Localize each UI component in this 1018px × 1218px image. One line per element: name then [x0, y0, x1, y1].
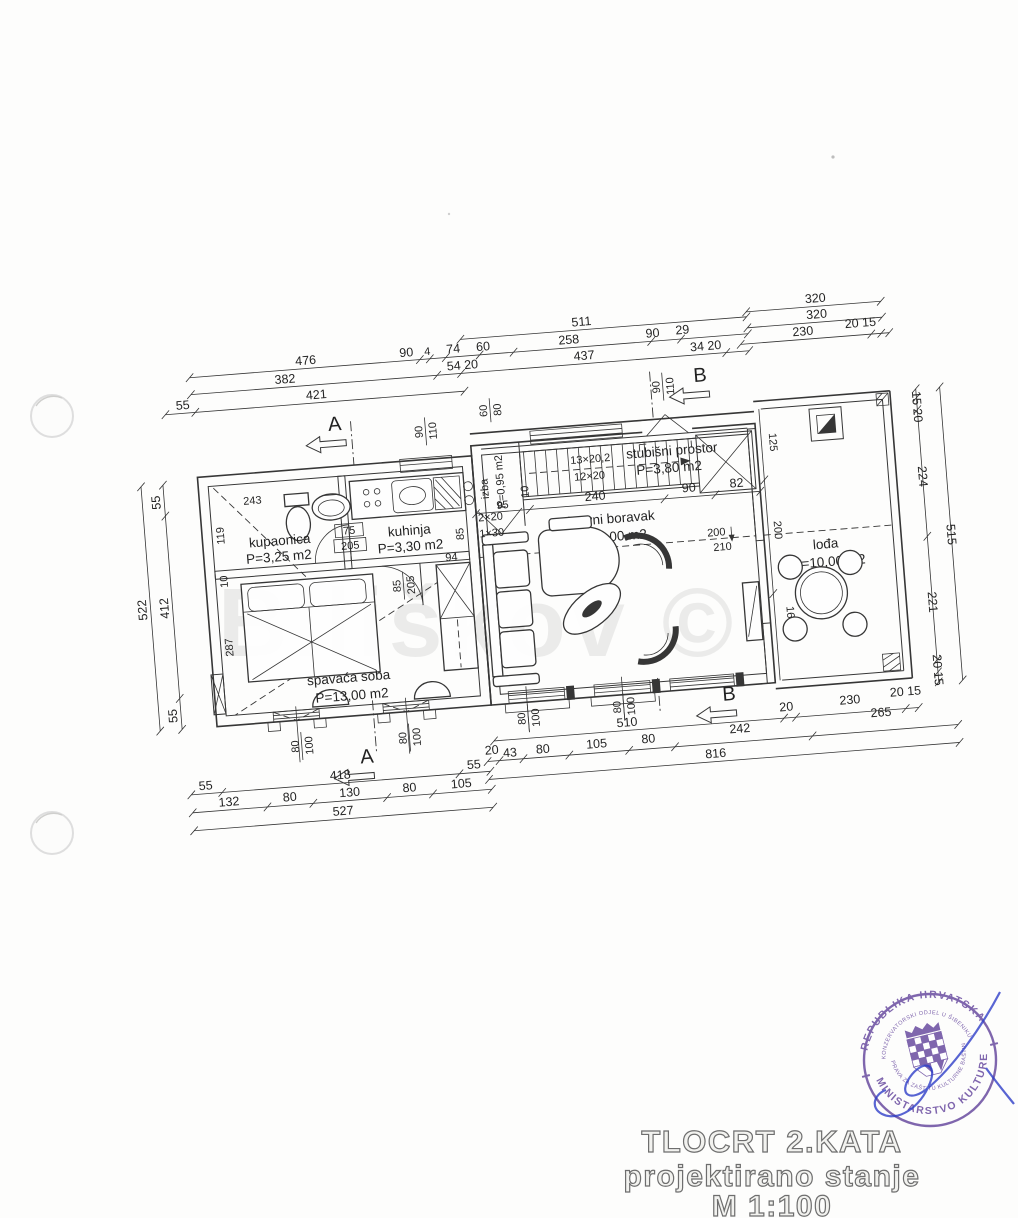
dim-label: 230: [792, 324, 814, 340]
window-size-label: 80 100: [396, 723, 424, 753]
dim-label: 90: [399, 345, 414, 360]
dim-label: 200: [707, 526, 726, 539]
title-block: TLOCRT 2.KATA projektirano stanje M 1:10…: [624, 1124, 921, 1218]
dim-label: 258: [558, 332, 580, 348]
curved-chair: [624, 533, 669, 572]
svg-text:85: 85: [391, 579, 404, 592]
room-label: izba: [478, 477, 492, 499]
dim-label: 80: [641, 731, 656, 746]
dim-label: 20: [779, 699, 794, 714]
corner-hatch: [862, 393, 910, 671]
floor-plan: 75 205 kupaonica P=3,25 m2 243 kuhinja P…: [115, 282, 977, 838]
dim-label: 74: [446, 341, 461, 356]
dim-chain-right: 15 20 224 221 20 15 515: [908, 382, 970, 686]
dim-label: 224: [915, 466, 931, 488]
kitchen: kuhinja P=3,30 m2: [349, 472, 477, 558]
dim-label: 527: [332, 803, 354, 819]
dim-label: 816: [705, 746, 727, 762]
dim-label: 119: [214, 527, 227, 545]
dim-label: 1×30: [479, 527, 505, 541]
svg-text:100: 100: [530, 708, 543, 727]
stair-steps-existing: 13×20,2: [570, 452, 611, 467]
door-size: 205: [341, 539, 360, 552]
dim-label: 55: [149, 495, 164, 510]
section-arrow-icon: [306, 435, 347, 454]
window-size-label: 90 110: [650, 372, 678, 402]
svg-text:110: 110: [427, 422, 440, 440]
dim-label: 94: [445, 551, 458, 564]
dim-label: 132: [218, 794, 240, 810]
drawing-title: TLOCRT 2.KATA: [641, 1124, 902, 1159]
dim-label: 130: [339, 785, 361, 801]
dim-label: 85: [454, 527, 467, 540]
svg-text:90: 90: [650, 381, 663, 394]
chair-icon: [842, 611, 868, 637]
window-size-label: 60 80: [477, 397, 505, 423]
section-label-a: A: [359, 745, 375, 768]
dim-label: 60: [476, 339, 491, 354]
dim-label: 95: [496, 499, 509, 512]
lodge: 125 200 160 lođa P=10,00 m2: [753, 391, 912, 689]
svg-text:80: 80: [289, 740, 302, 753]
dim-label: 90: [645, 326, 660, 341]
dim-label: 55: [175, 398, 190, 413]
dim-label: 287: [223, 638, 236, 657]
room-label: lođa: [812, 535, 839, 552]
dim-label: 90: [681, 480, 696, 495]
scan-speck: [448, 213, 450, 215]
scanned-floor-plan-page: Biliškov ©: [0, 0, 1018, 1218]
svg-text:80: 80: [492, 403, 505, 416]
dim-label: 421: [305, 387, 327, 403]
svg-text:80: 80: [397, 731, 410, 744]
svg-text:80: 80: [611, 701, 624, 714]
dim-label: 510: [616, 715, 638, 731]
svg-text:100: 100: [411, 727, 424, 746]
dim-label: 80: [282, 790, 297, 805]
dim-label: 55: [166, 709, 181, 724]
dim-chain-bottom-left: 55 418 55 132 80 130 80 105 527: [186, 756, 497, 835]
chimney-icon: [809, 407, 843, 441]
dim-label: 243: [243, 494, 262, 507]
dim-label: 200: [771, 520, 784, 539]
dim-label: 382: [274, 371, 296, 387]
dim-label: 29: [675, 322, 690, 337]
dim-label: 55: [198, 778, 213, 793]
dim-label: 476: [295, 353, 317, 369]
section-label-b: B: [722, 683, 737, 706]
sink-icon: [311, 493, 351, 522]
dim-label: 20 15: [930, 654, 946, 686]
svg-text:100: 100: [303, 736, 316, 755]
dim-label: 242: [729, 721, 751, 737]
window-size-label: 90 110: [412, 416, 440, 446]
section-label-a: A: [327, 413, 343, 436]
dim-label: 418: [329, 767, 351, 783]
drawing-scale: M 1:100: [712, 1190, 833, 1218]
dim-label: 10: [218, 575, 231, 588]
dim-label: 15 20: [909, 391, 925, 423]
dim-label: 320: [804, 291, 826, 307]
svg-text:100: 100: [625, 696, 638, 715]
hole-punches: [31, 395, 73, 854]
toilet-tank: [284, 493, 309, 507]
bedside-item: [413, 680, 450, 699]
scan-speck: [831, 155, 834, 158]
dim-label: 320: [806, 307, 828, 323]
svg-text:110: 110: [664, 377, 677, 395]
room-area: P=13,00 m2: [315, 685, 389, 706]
dim-label: 230: [839, 692, 861, 708]
hole-punch: [31, 395, 73, 437]
dim-label: 43: [503, 745, 518, 760]
dim-label: 80: [535, 742, 550, 757]
dim-label: 221: [925, 591, 941, 613]
dim-label: 125: [766, 433, 779, 452]
dim-label: 265: [870, 705, 892, 721]
dim-label: 20: [484, 743, 499, 758]
door-size: 75: [343, 525, 356, 538]
section-label-b: B: [692, 364, 707, 387]
dim-label: 4: [424, 346, 431, 358]
section-arrow-icon: [696, 705, 737, 724]
dim-chain-left: 55 412 55 522: [126, 481, 187, 736]
svg-text:90: 90: [413, 425, 426, 438]
dim-label: 437: [573, 348, 595, 364]
dim-label: 10: [519, 485, 532, 498]
dim-label: 511: [571, 314, 592, 330]
dim-label: 515: [943, 523, 959, 545]
svg-text:80: 80: [516, 712, 529, 725]
stair-steps-new: 12×20: [574, 469, 606, 483]
step-labels: 2×20 1×30 85: [453, 511, 504, 543]
coat-of-arms-icon: [904, 1021, 950, 1079]
svg-text:205: 205: [405, 575, 418, 594]
dim-label: 20 15: [844, 315, 876, 331]
dim-label: 20 15: [889, 683, 921, 699]
window-size-label: 80 100: [289, 731, 317, 761]
bathroom: 75 205 kupaonica P=3,25 m2 243: [241, 487, 367, 569]
drawing-subtitle: projektirano stanje: [624, 1160, 921, 1193]
dim-label: 105: [586, 736, 608, 752]
hole-punch: [31, 812, 73, 854]
dim-label: 522: [135, 599, 151, 621]
window-size-label: 80 100: [515, 703, 543, 733]
dim-label: 105: [450, 776, 472, 792]
dim-label: 54 20: [446, 357, 478, 373]
dim-label: 34 20: [690, 338, 722, 354]
dim-label: 82: [729, 476, 744, 491]
dim-label: 55: [466, 757, 481, 772]
dim-label: 210: [713, 541, 732, 554]
svg-text:60: 60: [478, 404, 491, 417]
room-area: P=3,30 m2: [377, 536, 444, 556]
dim-label: 412: [157, 597, 173, 619]
dim-label: 240: [584, 488, 606, 504]
dim-label: 80: [402, 780, 417, 795]
